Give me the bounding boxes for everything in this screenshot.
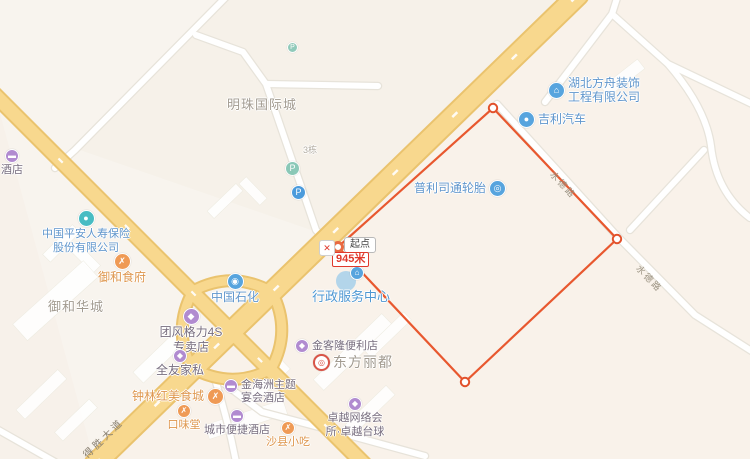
poi-label-line1: 团风格力4S <box>160 326 223 340</box>
target-icon: ◎ <box>313 354 330 371</box>
shop-icon: ◆ <box>295 339 309 353</box>
area-label-pearl-city: 明珠国际城 <box>227 94 297 113</box>
poi-pingan-insurance[interactable]: ● 中国平安人寿保险 股份有限公司 <box>40 210 132 254</box>
insurance-icon: ● <box>78 210 95 227</box>
area-label-yuhe-huacheng: 御和华城 <box>48 296 104 315</box>
poi-dongfang-lidu[interactable]: ◎ 东方丽都 <box>313 354 393 371</box>
poi-tuanfeng-gree-4s[interactable]: ◆ 团风格力4S 专卖店 <box>148 308 234 355</box>
poi-label-line1: 卓越网络会 <box>328 412 383 425</box>
poi-hubei-fangzhou[interactable]: ⌂ 湖北方舟装饰 工程有限公司 <box>548 77 640 105</box>
poi-label-line2: 所·卓越台球 <box>326 426 385 439</box>
poi-zhonglinhong-food-city[interactable]: 钟林红美食城 ✗ <box>132 388 224 405</box>
measure-vertex-1[interactable] <box>489 104 497 112</box>
poi-label: 吉利汽车 <box>538 113 586 127</box>
poi-label-line1: 金海洲主题 <box>241 379 296 392</box>
hotel-icon: ▬ <box>224 379 238 393</box>
poi-label-line1: 中国平安人寿保险 <box>42 228 130 241</box>
food-icon: ✗ <box>177 404 191 418</box>
parking-icon[interactable]: P <box>287 42 298 53</box>
food-icon: ✗ <box>114 253 131 270</box>
poi-label: 全友家私 <box>156 364 204 378</box>
poi-label-line1: 湖北方舟装饰 <box>568 77 640 91</box>
poi-zhuoyue-net-billiards[interactable]: ◆ 卓越网络会 所·卓越台球 <box>320 397 390 438</box>
measure-distance-label: 945米 <box>332 252 369 267</box>
network-icon: ◆ <box>348 397 362 411</box>
measure-close-button[interactable]: ✕ <box>319 240 335 256</box>
poi-jinhaizhou-hotel[interactable]: ▬ 金海洲主题 宴会酒店 <box>224 379 296 404</box>
poi-label-line2: 工程有限公司 <box>568 91 640 105</box>
poi-quanyou-furniture[interactable]: ◆ 全友家私 <box>150 349 210 378</box>
company-icon: ⌂ <box>548 82 565 99</box>
poi-left-edge-hotel[interactable]: ▬ 酒店 <box>0 149 32 177</box>
map-canvas[interactable]: 得胜大道 水德路 水德路 明珠国际城 御和华城 3栋 ▬ 酒店 ⌂ 湖北方舟装饰… <box>0 0 750 459</box>
poi-shaxian-snacks[interactable]: ✗ 沙县小吃 <box>260 421 316 449</box>
shop-icon: ◆ <box>173 349 187 363</box>
car-icon: ● <box>518 111 535 128</box>
food-icon: ✗ <box>207 388 224 405</box>
parking-icon[interactable]: P <box>291 185 306 200</box>
poi-jinkelong-store[interactable]: ◆ 金客隆便利店 <box>295 339 378 353</box>
poi-label: 金客隆便利店 <box>312 340 378 353</box>
poi-label: 普利司通轮胎 <box>414 182 486 196</box>
measure-vertex-3[interactable] <box>461 378 469 386</box>
poi-geely-auto[interactable]: ● 吉利汽车 <box>518 111 586 128</box>
poi-bridgestone[interactable]: 普利司通轮胎 ◎ <box>414 180 506 197</box>
poi-label-line2: 宴会酒店 <box>241 392 296 405</box>
food-icon: ✗ <box>281 421 295 435</box>
poi-label: 酒店 <box>1 164 23 177</box>
poi-sinopec[interactable]: ◉ 中国石化 <box>207 273 263 305</box>
hotel-icon: ▬ <box>230 409 244 423</box>
poi-label: 口味堂 <box>168 419 201 432</box>
measure-vertex-2[interactable] <box>613 235 621 243</box>
measure-start-label: 起点 <box>344 237 376 253</box>
area-label-building-3: 3栋 <box>303 143 317 156</box>
poi-label: 行政服务中心 <box>312 290 390 305</box>
poi-label: 钟林红美食城 <box>132 390 204 404</box>
poi-label: 御和食府 <box>98 271 146 285</box>
poi-label: 沙县小吃 <box>266 436 310 449</box>
hotel-icon: ▬ <box>5 149 19 163</box>
poi-label: 中国石化 <box>211 291 259 305</box>
poi-yuhe-shifu[interactable]: ✗ 御和食府 <box>94 253 150 285</box>
parking-icon[interactable]: P <box>285 161 300 176</box>
gas-station-icon: ◉ <box>227 273 244 290</box>
shop-icon: ◆ <box>183 308 200 325</box>
tire-icon: ◎ <box>489 180 506 197</box>
admin-center-icon: ⌂ <box>350 266 364 280</box>
poi-label: 东方丽都 <box>333 354 393 370</box>
